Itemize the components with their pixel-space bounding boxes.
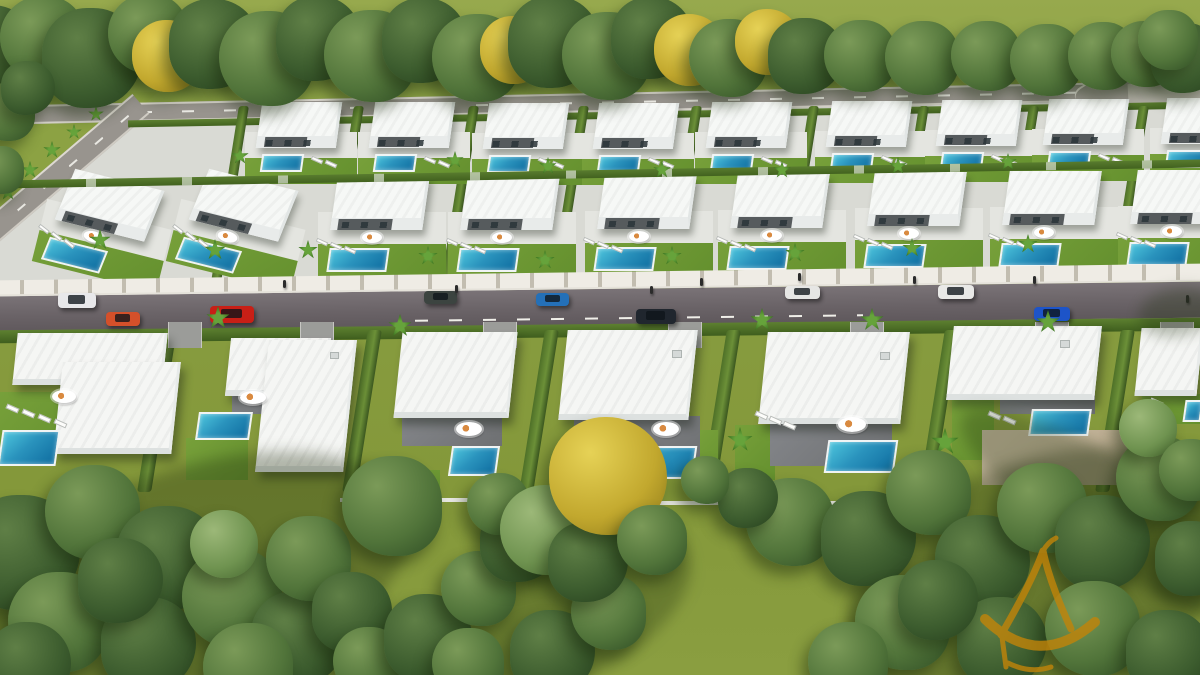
- villa-house: [1130, 170, 1200, 224]
- outdoor-dining-table: [240, 391, 266, 404]
- villa: [1118, 170, 1200, 270]
- villa: [990, 171, 1118, 271]
- villa-roof: [558, 330, 697, 420]
- swimming-pool: [726, 246, 789, 270]
- outdoor-dining-table: [762, 230, 782, 241]
- dark-navy-car: [636, 309, 676, 324]
- villa-roof: [393, 332, 517, 418]
- villa-house: [826, 101, 912, 147]
- covered-terrace: [1137, 213, 1192, 224]
- tree: [1138, 10, 1198, 70]
- dark-gray-car: [424, 291, 457, 304]
- swimming-pool: [1182, 400, 1200, 422]
- white-car: [785, 286, 820, 299]
- villa-house: [330, 176, 430, 230]
- roof-unit: [880, 352, 890, 360]
- covered-terrace: [491, 138, 535, 148]
- outdoor-dining-table: [653, 422, 679, 436]
- covered-terrace: [467, 219, 522, 230]
- swimming-pool: [448, 446, 500, 476]
- swimming-pool: [1126, 242, 1189, 266]
- villa-house: [1002, 171, 1102, 225]
- villa-house: [706, 102, 792, 148]
- villa: [318, 176, 446, 276]
- pedestrian: [913, 276, 916, 284]
- tree: [342, 456, 442, 556]
- villa: [718, 174, 846, 274]
- car-windshield: [433, 293, 448, 300]
- car-windshield: [1043, 309, 1060, 317]
- villa-house: [483, 103, 569, 149]
- villa-house: [936, 100, 1022, 146]
- villa-house: [1043, 99, 1129, 145]
- outdoor-dining-table: [1034, 227, 1054, 238]
- villa-house: [597, 175, 697, 229]
- outdoor-dining-table: [52, 390, 76, 403]
- swimming-pool: [593, 247, 656, 271]
- covered-terrace: [1169, 133, 1200, 143]
- swimming-pool: [487, 155, 532, 173]
- villa: [585, 175, 713, 275]
- pedestrian: [650, 286, 653, 294]
- car-windshield: [947, 287, 964, 295]
- outdoor-dining-table: [838, 417, 866, 432]
- blue-car: [536, 293, 569, 306]
- roof-unit: [672, 350, 682, 358]
- car-windshield: [68, 295, 85, 303]
- orange-car: [106, 312, 140, 326]
- swimming-pool: [824, 440, 899, 473]
- outdoor-dining-table: [629, 231, 649, 242]
- villa: [245, 102, 357, 184]
- outdoor-dining-table: [456, 422, 482, 436]
- pedestrian: [283, 280, 286, 288]
- villa-house: [593, 103, 679, 149]
- car-windshield: [545, 295, 560, 302]
- covered-terrace: [737, 217, 792, 228]
- swimming-pool: [260, 154, 305, 172]
- tree: [681, 456, 729, 504]
- aerial-render-scene: [0, 0, 1200, 675]
- covered-terrace: [337, 219, 392, 230]
- villa: [855, 172, 983, 272]
- outdoor-dining-table: [1162, 226, 1182, 237]
- driveway: [168, 322, 202, 348]
- villa: [448, 176, 576, 276]
- villa-house: [867, 172, 967, 226]
- covered-terrace: [1051, 134, 1095, 144]
- tree: [617, 505, 687, 575]
- white-car: [938, 285, 974, 299]
- swimming-pool: [195, 412, 253, 440]
- tree: [885, 21, 959, 95]
- outdoor-dining-table: [362, 232, 382, 243]
- tree: [78, 538, 163, 623]
- roof-unit: [1060, 340, 1070, 348]
- covered-terrace: [714, 137, 758, 147]
- pedestrian: [700, 278, 703, 286]
- villa-house: [730, 174, 830, 228]
- silver-car: [58, 293, 96, 308]
- villa-house: [1161, 98, 1200, 144]
- swimming-pool: [326, 248, 389, 272]
- covered-terrace: [944, 135, 988, 145]
- car-windshield: [115, 314, 131, 322]
- swimming-pool: [0, 430, 61, 466]
- covered-terrace: [377, 137, 421, 147]
- villa-house: [460, 176, 560, 230]
- villa-roof: [946, 326, 1102, 400]
- covered-terrace: [604, 218, 659, 229]
- swimming-pool: [456, 248, 519, 272]
- villa-roof: [53, 362, 181, 454]
- villa-house: [369, 102, 455, 148]
- pedestrian: [1033, 276, 1036, 284]
- covered-terrace: [874, 215, 929, 226]
- roof-unit: [330, 352, 339, 359]
- pedestrian: [798, 273, 801, 281]
- tree: [190, 510, 258, 578]
- covered-terrace: [601, 138, 645, 148]
- covered-terrace: [264, 137, 308, 147]
- villa-house: [256, 102, 342, 148]
- covered-terrace: [1009, 214, 1064, 225]
- villa-roof: [1134, 328, 1200, 396]
- car-windshield: [646, 311, 664, 319]
- outdoor-dining-table: [899, 228, 919, 239]
- outdoor-dining-table: [492, 232, 512, 243]
- pedestrian: [455, 285, 458, 293]
- swimming-pool: [373, 154, 418, 172]
- villa-roof: [758, 332, 910, 424]
- car-windshield: [794, 288, 810, 295]
- covered-terrace: [834, 136, 878, 146]
